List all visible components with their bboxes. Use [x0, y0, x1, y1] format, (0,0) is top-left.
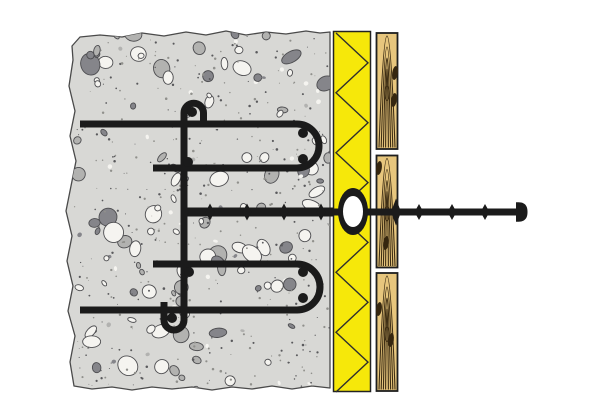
anchor-barb	[415, 204, 424, 220]
anchor-washer-hole	[343, 196, 363, 227]
wood-board	[377, 33, 398, 149]
rebar-cross-section-dot	[298, 293, 308, 303]
wood-board	[377, 273, 398, 391]
wall-anchor-cross-section-diagram	[0, 0, 600, 400]
rebar-cross-section-dot	[298, 128, 308, 138]
construction-detail-stage	[0, 0, 600, 400]
anchor-rod-embedded	[182, 208, 333, 217]
anchor-head	[516, 202, 528, 221]
rebar-cross-section-dot	[183, 157, 193, 167]
rebar-cross-section-dot	[187, 107, 197, 117]
rebar-cross-section-dot	[298, 267, 308, 277]
anchor-barb	[481, 204, 490, 220]
rebar-cross-section-dot	[184, 267, 194, 277]
anchor-barb	[448, 204, 457, 220]
rebar-cross-section-dot	[298, 154, 308, 164]
rebar-cross-section-dot	[167, 313, 177, 323]
